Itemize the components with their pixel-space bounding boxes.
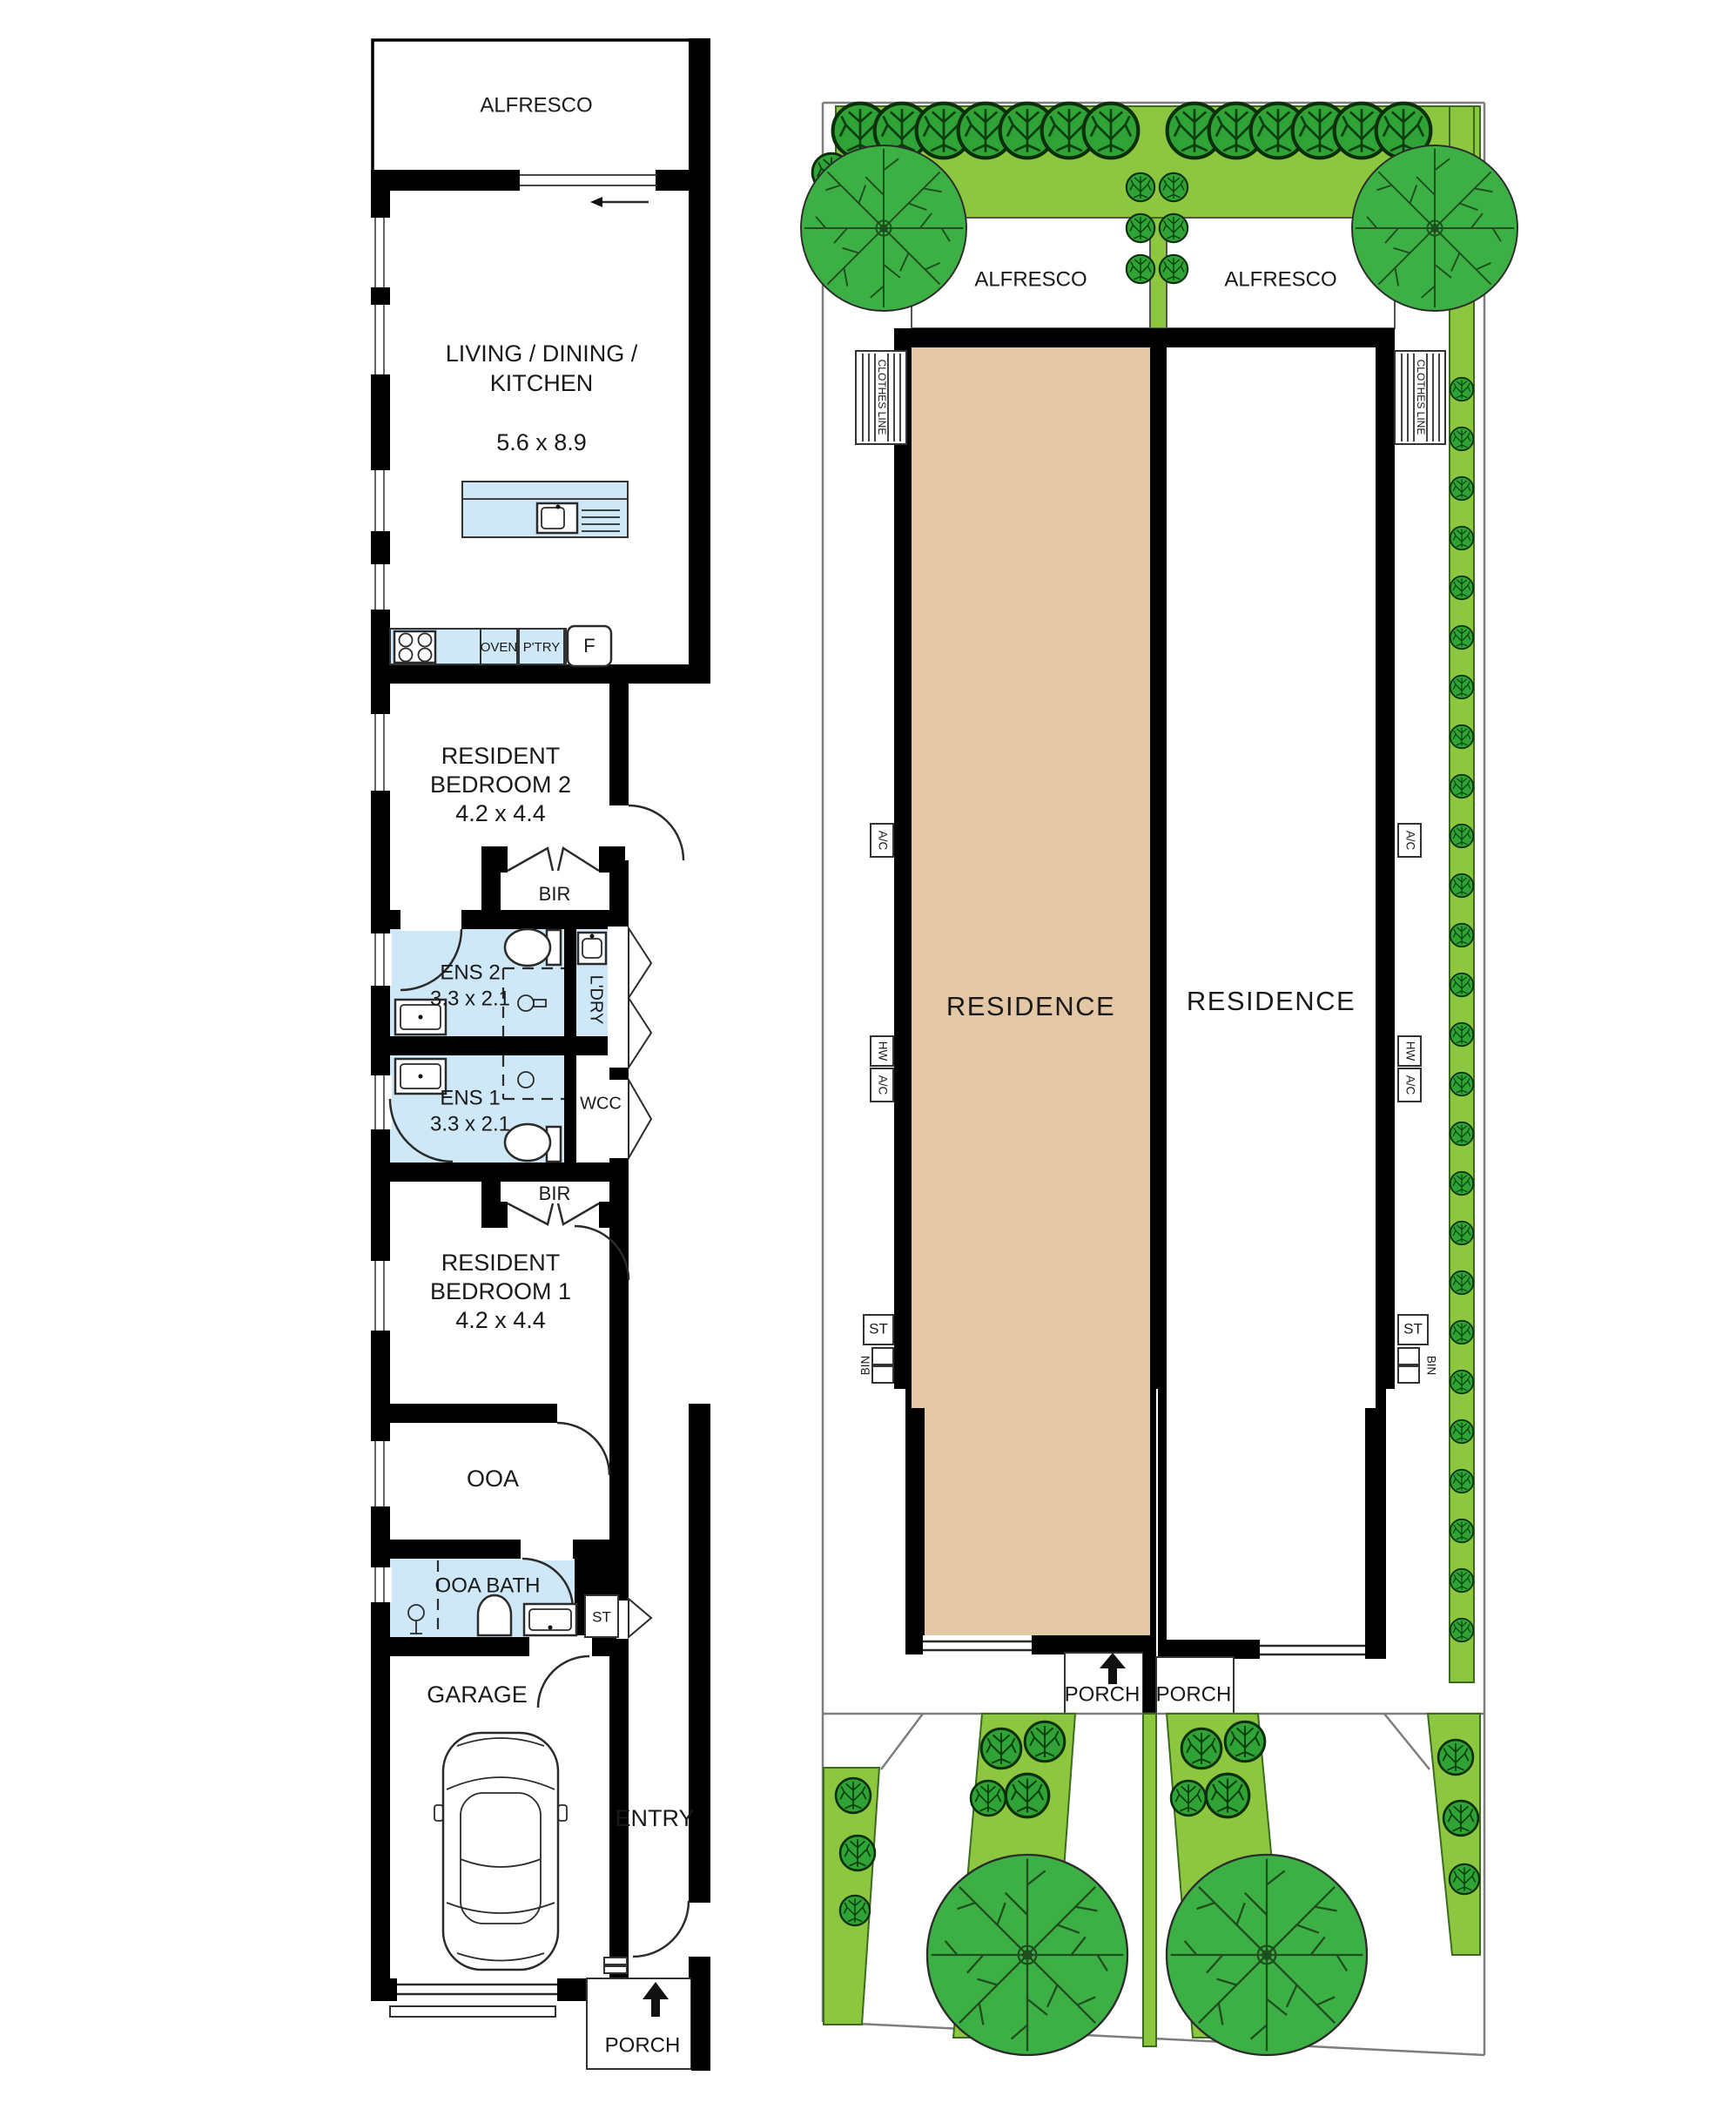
- bush-icon: [1025, 1722, 1065, 1762]
- pantry-label: P'TRY: [523, 640, 561, 655]
- bush-icon: [836, 1778, 871, 1813]
- bin-left: [872, 1348, 893, 1365]
- toilet-bowl: [478, 1595, 511, 1635]
- bush-icon: [1206, 1774, 1248, 1816]
- bedroom1-dims: 4.2 x 4.4: [455, 1307, 546, 1333]
- hw-ac-left-label: A/C: [876, 1075, 889, 1095]
- plan-canvas: ALFRESCO LIVING / DINING / KITCHEN 5.6 x…: [0, 0, 1736, 2116]
- wcc-label: WCC: [580, 1094, 622, 1113]
- living-label-1: LIVING / DINING /: [446, 340, 638, 367]
- porch-right-label: PORCH: [1156, 1682, 1232, 1706]
- bush-icon: [1438, 1740, 1473, 1775]
- laundry-ext-door2: [629, 998, 651, 1068]
- bush-icon: [1450, 924, 1474, 947]
- bush-icon: [1443, 1801, 1478, 1836]
- bush-icon: [1450, 1271, 1474, 1295]
- bath-door-gap: [521, 1538, 573, 1560]
- laundry-label: L'DRY: [587, 975, 606, 1025]
- entry-step: [604, 1966, 627, 1973]
- residence-left-label: RESIDENCE: [946, 991, 1115, 1021]
- garage-door-right-lot: [1260, 1640, 1365, 1661]
- party-wall-porch: [1143, 1635, 1156, 1714]
- alfresco-wall-left: [371, 170, 520, 191]
- alfresco-label: ALFRESCO: [480, 93, 592, 117]
- bedroom1-label-2: BEDROOM 1: [430, 1278, 571, 1304]
- bush-icon: [1450, 1371, 1474, 1394]
- bush-icon: [971, 1781, 1006, 1816]
- bir-lower: [481, 1202, 625, 1228]
- alfresco-left-label: ALFRESCO: [974, 267, 1087, 291]
- ooa-right-wall: [609, 1423, 629, 1540]
- tree-icon: [927, 1855, 1127, 2055]
- bin-left: [872, 1366, 893, 1383]
- ens1-label: ENS 1: [440, 1086, 500, 1109]
- oven-label: OVEN: [481, 640, 518, 655]
- bin-right-label: BIN: [1424, 1356, 1437, 1376]
- bush-icon: [840, 1836, 875, 1870]
- tree-icon: [1167, 1855, 1367, 2055]
- entry-step: [604, 1958, 627, 1964]
- wall-ens1-bottom: [371, 1162, 629, 1182]
- bush-icon: [1450, 1520, 1474, 1543]
- clothesline-right-label: CLOTHES LINE: [1415, 360, 1427, 435]
- front-door-arc: [633, 1901, 689, 1957]
- wall-ens-divide: [371, 1036, 629, 1055]
- ens2-dims: 3.3 x 2.1: [430, 987, 510, 1010]
- residence-right-label: RESIDENCE: [1187, 986, 1356, 1016]
- bin-left-label: BIN: [859, 1356, 872, 1376]
- tree-icon: [1352, 145, 1517, 311]
- right-wall-top: [689, 38, 710, 684]
- bed2-door-arc: [629, 805, 683, 860]
- bush-icon: [1450, 1321, 1474, 1344]
- bush-icon: [1160, 255, 1188, 283]
- ooa-label: OOA: [467, 1466, 519, 1492]
- bir-upper-label: BIR: [539, 883, 571, 905]
- storage-label: ST: [592, 1608, 611, 1625]
- bush-icon: [1450, 1073, 1474, 1096]
- bush-icon: [1450, 626, 1474, 650]
- site-plan-panel: ALFRESCO ALFRESCO RESIDENCE RESIDENCE CL…: [801, 103, 1517, 2055]
- tree-icon: [801, 145, 966, 311]
- entry-right-wall-low: [689, 1957, 710, 1978]
- bush-icon: [1450, 825, 1474, 848]
- bush-icon: [1127, 214, 1154, 242]
- alfresco-right-label: ALFRESCO: [1224, 267, 1336, 291]
- bush-icon: [1450, 1864, 1479, 1894]
- ens1-divider: [564, 1055, 576, 1162]
- bush-icon: [840, 1896, 870, 1925]
- ooa-door-gap: [557, 1402, 609, 1425]
- bush-icon: [1450, 576, 1474, 600]
- kitchen-island: [462, 482, 628, 537]
- ens2-label: ENS 2: [440, 960, 500, 984]
- bush-icon: [1006, 1774, 1048, 1816]
- fridge-label: F: [583, 635, 595, 657]
- wcc-door-gap: [608, 1080, 630, 1158]
- ens1-dims: 3.3 x 2.1: [430, 1112, 510, 1135]
- bush-icon: [1450, 676, 1474, 699]
- garage-sill: [390, 2006, 555, 2017]
- bush-icon: [1450, 775, 1474, 799]
- bedroom1-label-1: RESIDENT: [441, 1250, 561, 1276]
- kitchen-wall: [371, 664, 710, 684]
- bush-icon: [1450, 974, 1474, 997]
- bir-lower-label: BIR: [539, 1183, 571, 1204]
- bush-icon: [1127, 255, 1154, 283]
- garage-door-left-lot: [923, 1635, 1032, 1656]
- garage-front-left: [371, 1978, 397, 2001]
- bifold-door: [508, 848, 599, 871]
- ens2-divider: [564, 929, 576, 1036]
- st-top-wall: [585, 1559, 618, 1595]
- bin-right: [1398, 1348, 1419, 1365]
- wcc-ext-door: [629, 1080, 651, 1158]
- floor-plan-panel: ALFRESCO LIVING / DINING / KITCHEN 5.6 x…: [369, 38, 712, 2071]
- bush-icon: [1450, 1619, 1474, 1642]
- bush-icon: [1450, 1470, 1474, 1493]
- bush-icon: [1450, 725, 1474, 749]
- porch-left-label: PORCH: [1065, 1682, 1141, 1706]
- bush-icon: [1450, 1122, 1474, 1146]
- alfresco-wall-right: [656, 170, 689, 191]
- laundry-door-gap: [608, 927, 630, 1068]
- wall-ooa-bottom: [371, 1540, 629, 1559]
- bush-icon: [1450, 1222, 1474, 1245]
- entry-label: ENTRY: [615, 1805, 694, 1831]
- bush-icon: [981, 1729, 1021, 1769]
- bush-icon: [1160, 173, 1188, 201]
- garage-door-gap: [529, 1635, 592, 1658]
- bir1-side: [481, 873, 501, 910]
- clothesline-left-label: CLOTHES LINE: [876, 360, 888, 435]
- bush-icon: [1450, 1172, 1474, 1196]
- bush-icon: [1450, 527, 1474, 550]
- toilet-bowl: [505, 1124, 550, 1161]
- bush-icon: [1084, 104, 1139, 158]
- hw-right-label: HW: [1403, 1041, 1416, 1061]
- bush-icon: [1450, 874, 1474, 898]
- toilet-bowl: [505, 929, 550, 966]
- living-dims: 5.6 x 8.9: [496, 429, 587, 455]
- ooa-door-arc: [557, 1423, 609, 1475]
- bir-upper: [481, 846, 625, 873]
- bush-icon: [1160, 214, 1188, 242]
- garage-door-arc: [538, 1656, 589, 1708]
- bedroom2-dims: 4.2 x 4.4: [455, 800, 546, 826]
- bedroom2-label-2: BEDROOM 2: [430, 772, 571, 798]
- floorplan-document: ALFRESCO LIVING / DINING / KITCHEN 5.6 x…: [0, 0, 1736, 2116]
- bush-icon: [1450, 1023, 1474, 1047]
- laundry-sink: [578, 933, 606, 964]
- stacker-door: [520, 175, 657, 207]
- bush-icon: [1450, 1420, 1474, 1444]
- ac-left-label: A/C: [876, 831, 889, 851]
- porch-label: PORCH: [605, 2033, 681, 2057]
- bedroom2-label-1: RESIDENT: [441, 743, 561, 769]
- living-label-2: KITCHEN: [490, 370, 594, 396]
- porch-right-wall: [691, 1977, 710, 2071]
- ac-right-label: A/C: [1403, 831, 1416, 851]
- st-right-label: ST: [1403, 1320, 1423, 1337]
- car-icon: [434, 1733, 567, 1970]
- st-left-label: ST: [869, 1320, 888, 1337]
- front-door-gap: [687, 1903, 712, 1957]
- bush-icon: [1127, 173, 1154, 201]
- bush-icon: [1171, 1781, 1206, 1816]
- hw-ac-right-label: A/C: [1403, 1075, 1416, 1095]
- bush-icon: [1225, 1722, 1265, 1762]
- bush-icon: [1450, 378, 1474, 401]
- hw-left-label: HW: [876, 1041, 889, 1061]
- laundry-ext-door: [629, 928, 651, 998]
- bifold-door: [508, 1203, 599, 1224]
- slide-arrow-icon: [590, 197, 602, 207]
- bush-icon: [1181, 1729, 1221, 1769]
- center-garden-strip: [1143, 1714, 1156, 2046]
- ooa-bath-label: OOA BATH: [435, 1574, 541, 1597]
- st-ext-door: [629, 1599, 651, 1637]
- bin-right: [1398, 1366, 1419, 1383]
- garage-label: GARAGE: [427, 1681, 528, 1708]
- bush-icon: [1450, 1569, 1474, 1593]
- ens2-door-gap: [400, 908, 461, 931]
- bush-icon: [1450, 428, 1474, 451]
- bush-icon: [1450, 477, 1474, 501]
